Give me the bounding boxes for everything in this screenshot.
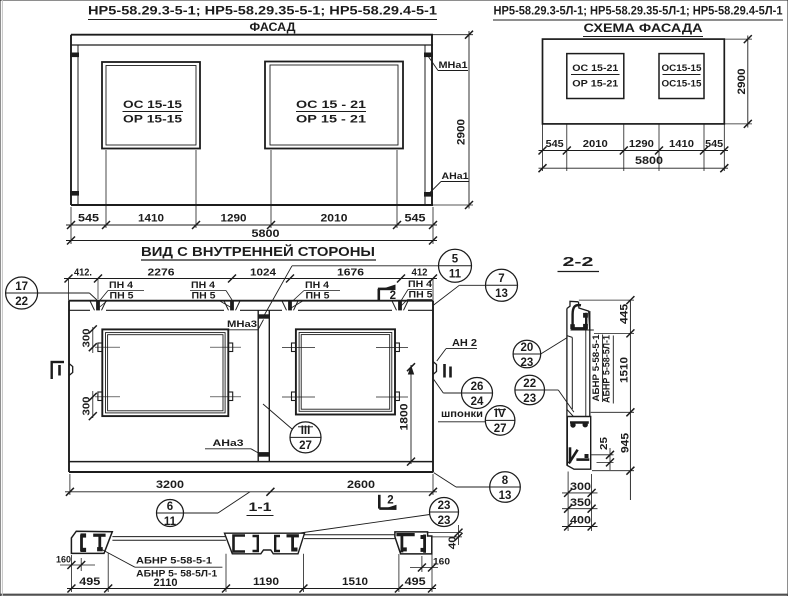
svg-text:2-2: 2-2 xyxy=(563,255,594,269)
svg-text:25: 25 xyxy=(599,436,610,450)
svg-text:1290: 1290 xyxy=(629,138,654,150)
svg-text:20: 20 xyxy=(521,342,534,354)
svg-text:1190: 1190 xyxy=(253,576,279,588)
svg-text:400: 400 xyxy=(570,515,591,527)
svg-text:1024: 1024 xyxy=(250,268,277,279)
svg-text:1800: 1800 xyxy=(399,404,411,431)
svg-text:ПН 4: ПН 4 xyxy=(191,280,215,290)
svg-text:11: 11 xyxy=(449,269,462,281)
svg-text:ПН 5: ПН 5 xyxy=(110,291,134,301)
svg-text:17: 17 xyxy=(15,281,28,293)
svg-text:ПН 5: ПН 5 xyxy=(192,291,216,301)
svg-text:НР5-58.29.3-5-1; НР5-58.29.35-: НР5-58.29.3-5-1; НР5-58.29.35-5-1; НР5-5… xyxy=(88,4,437,18)
svg-text:160: 160 xyxy=(56,555,71,566)
svg-text:27: 27 xyxy=(299,440,312,452)
svg-text:40: 40 xyxy=(448,536,459,550)
svg-text:НР5-58.29.3-5Л-1; НР5-58.29.35: НР5-58.29.3-5Л-1; НР5-58.29.35-5Л-1; НР5… xyxy=(494,4,783,18)
svg-text:шпонки: шпонки xyxy=(441,409,483,420)
svg-text:2276: 2276 xyxy=(148,268,176,279)
svg-text:3200: 3200 xyxy=(156,479,184,491)
svg-text:1-1: 1-1 xyxy=(249,502,273,514)
svg-text:300: 300 xyxy=(82,328,93,347)
svg-text:МНа1: МНа1 xyxy=(439,60,469,71)
svg-text:ОР 15 - 21: ОР 15 - 21 xyxy=(296,114,366,126)
svg-text:412.: 412. xyxy=(74,268,92,279)
svg-text:1410: 1410 xyxy=(138,213,164,225)
svg-text:АБНР 5-58-5-1: АБНР 5-58-5-1 xyxy=(136,556,213,567)
svg-text:1510: 1510 xyxy=(342,576,368,588)
svg-text:26: 26 xyxy=(471,381,484,393)
svg-text:АН 2: АН 2 xyxy=(452,338,477,349)
svg-text:5: 5 xyxy=(452,254,459,266)
svg-text:2: 2 xyxy=(387,494,393,506)
svg-text:ФАСАД: ФАСАД xyxy=(250,20,296,34)
svg-text:1410: 1410 xyxy=(669,138,694,150)
svg-text:412: 412 xyxy=(412,268,428,279)
svg-text:22: 22 xyxy=(523,378,536,390)
svg-text:300: 300 xyxy=(570,481,591,493)
svg-text:5800: 5800 xyxy=(635,155,663,167)
svg-text:23: 23 xyxy=(438,500,451,512)
svg-text:545: 545 xyxy=(546,138,564,150)
svg-text:445: 445 xyxy=(619,304,631,324)
svg-text:13: 13 xyxy=(495,288,508,300)
svg-text:ПН 5: ПН 5 xyxy=(306,291,330,301)
svg-text:ПН 4: ПН 4 xyxy=(305,280,329,290)
svg-text:ВИД С ВНУТРЕННЕЙ СТОРОНЫ: ВИД С ВНУТРЕННЕЙ СТОРОНЫ xyxy=(141,244,375,259)
svg-text:МНа3: МНа3 xyxy=(227,319,257,330)
svg-text:1510: 1510 xyxy=(619,357,631,383)
svg-text:ОР 15-21: ОР 15-21 xyxy=(572,79,619,90)
svg-text:2600: 2600 xyxy=(347,479,375,491)
svg-text:2900: 2900 xyxy=(456,119,468,145)
svg-text:495: 495 xyxy=(405,576,426,588)
svg-text:8: 8 xyxy=(502,475,509,487)
svg-text:350: 350 xyxy=(570,497,591,509)
svg-text:23: 23 xyxy=(521,357,534,369)
svg-text:1676: 1676 xyxy=(337,268,365,279)
svg-text:1290: 1290 xyxy=(221,213,247,225)
svg-text:ОС15-15: ОС15-15 xyxy=(662,79,703,90)
svg-text:22: 22 xyxy=(15,296,28,308)
svg-text:АБНР 5-58-5Л-1: АБНР 5-58-5Л-1 xyxy=(601,334,612,403)
svg-text:ПН 5: ПН 5 xyxy=(409,290,433,300)
svg-text:2010: 2010 xyxy=(583,138,608,150)
svg-text:СХЕМА ФАСАДА: СХЕМА ФАСАДА xyxy=(584,21,703,35)
svg-text:2010: 2010 xyxy=(321,213,348,225)
svg-text:545: 545 xyxy=(705,138,723,150)
svg-text:27: 27 xyxy=(494,423,507,435)
svg-text:ОС 15 - 21: ОС 15 - 21 xyxy=(296,99,366,111)
svg-text:5800: 5800 xyxy=(252,228,280,240)
svg-text:АБНР 5-58-5-1: АБНР 5-58-5-1 xyxy=(591,334,602,402)
svg-text:ОС15-15: ОС15-15 xyxy=(662,63,703,74)
svg-text:23: 23 xyxy=(523,393,536,405)
svg-text:545: 545 xyxy=(78,213,99,225)
svg-text:ПН 4: ПН 4 xyxy=(109,280,133,290)
svg-text:13: 13 xyxy=(499,490,512,502)
svg-text:ПН 4: ПН 4 xyxy=(408,279,432,289)
svg-text:945: 945 xyxy=(620,433,632,453)
svg-text:ОР 15-15: ОР 15-15 xyxy=(123,114,182,126)
svg-text:300: 300 xyxy=(82,396,93,415)
svg-text:ОС 15-15: ОС 15-15 xyxy=(123,99,182,111)
svg-text:2110: 2110 xyxy=(154,577,178,589)
svg-text:160: 160 xyxy=(433,557,450,568)
svg-text:6: 6 xyxy=(167,501,173,513)
svg-text:495: 495 xyxy=(79,576,100,588)
svg-text:11: 11 xyxy=(164,516,177,528)
svg-text:7: 7 xyxy=(498,273,504,285)
svg-text:ОС 15-21: ОС 15-21 xyxy=(572,63,619,74)
svg-text:545: 545 xyxy=(405,213,426,225)
svg-text:АНа1: АНа1 xyxy=(442,171,470,182)
svg-text:23: 23 xyxy=(438,515,451,527)
svg-text:АНа3: АНа3 xyxy=(213,438,244,449)
svg-text:24: 24 xyxy=(471,396,484,408)
svg-text:2900: 2900 xyxy=(736,69,748,95)
